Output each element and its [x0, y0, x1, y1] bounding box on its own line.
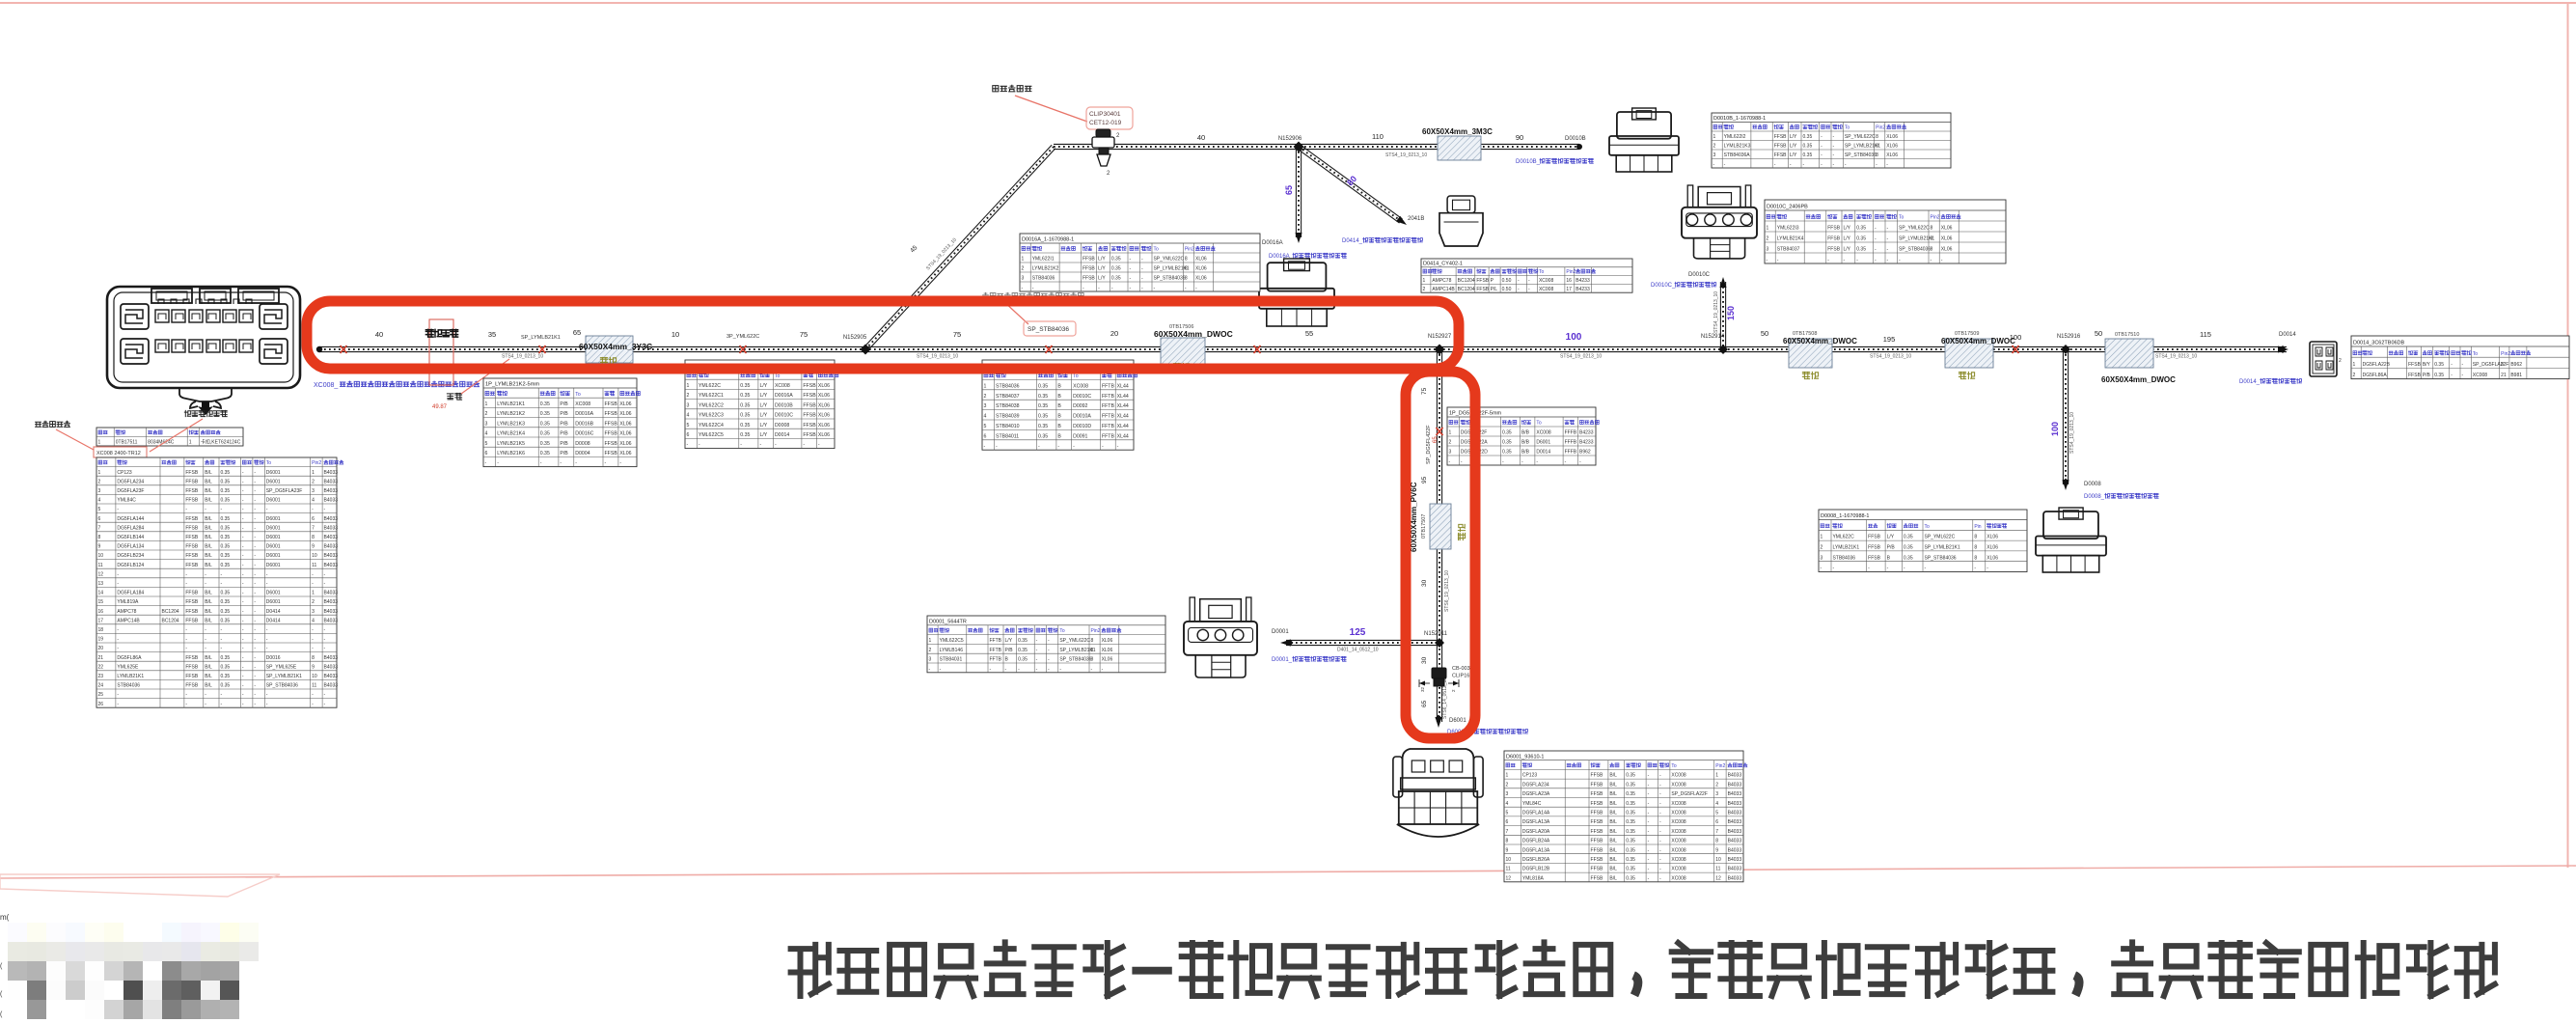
svg-text:FFSB: FFSB [1591, 801, 1603, 807]
svg-text:0.35: 0.35 [1856, 236, 1866, 242]
svg-text:STS4_19_0213_10: STS4_19_0213_10 [2155, 354, 2197, 360]
svg-text:3: 3 [312, 488, 315, 494]
svg-text:XC008: XC008 [2473, 373, 2488, 378]
svg-text:B4033: B4033 [1728, 829, 1742, 835]
svg-text:SP_YML625E: SP_YML625E [266, 664, 297, 670]
svg-text:0.35: 0.35 [220, 553, 230, 559]
svg-text:XL06: XL06 [1941, 226, 1953, 232]
svg-text:2: 2 [98, 479, 101, 484]
svg-text:1: 1 [189, 440, 192, 446]
svg-text:B/L: B/L [205, 488, 212, 494]
svg-text:FFTB: FFTB [989, 657, 1001, 663]
svg-text:4: 4 [1715, 801, 1718, 807]
svg-text:XC008: XC008 [575, 401, 590, 407]
svg-text:DG5FLA14A: DG5FLA14A [1522, 811, 1550, 816]
svg-text:0.35: 0.35 [1111, 266, 1121, 272]
svg-text:0.35: 0.35 [740, 413, 750, 419]
svg-text:FFSB: FFSB [1591, 867, 1603, 872]
svg-text:1: 1 [1713, 134, 1716, 140]
svg-text:0.35: 0.35 [1038, 394, 1048, 400]
svg-text:FFFB: FFFB [1565, 440, 1577, 446]
svg-text:0.35: 0.35 [1626, 867, 1635, 872]
svg-text:L/Y: L/Y [1844, 236, 1851, 242]
svg-text:FFSB: FFSB [2408, 362, 2421, 368]
svg-text:SP_STB84036: SP_STB84036 [1059, 657, 1091, 663]
svg-text:YML622I1: YML622I1 [1032, 257, 1055, 263]
svg-text:115: 115 [2200, 330, 2211, 339]
svg-text:To: To [1539, 269, 1545, 275]
svg-text:D0010B: D0010B [1565, 136, 1586, 142]
svg-text:DG5FLB144: DG5FLB144 [117, 535, 144, 540]
svg-text:FFSB: FFSB [185, 488, 198, 494]
svg-text:STB84036: STB84036 [117, 683, 140, 689]
svg-text:YML625E: YML625E [117, 664, 139, 670]
svg-text:9: 9 [312, 664, 315, 670]
svg-text:-: - [699, 442, 700, 448]
svg-text:FFTB: FFTB [989, 638, 1001, 644]
svg-text:CLIP30401: CLIP30401 [1089, 111, 1121, 118]
svg-text:SP_DG5FLA22F: SP_DG5FLA22F [1671, 791, 1708, 797]
svg-text:B/L: B/L [1609, 773, 1617, 779]
svg-text:11: 11 [312, 563, 316, 568]
svg-text:FFSB: FFSB [185, 618, 198, 623]
svg-text:21: 21 [2501, 373, 2507, 378]
svg-text:B4033: B4033 [1728, 811, 1742, 816]
svg-text:D0016A: D0016A [575, 411, 593, 417]
svg-text:D0014: D0014 [775, 432, 789, 438]
svg-text:3: 3 [312, 609, 315, 615]
svg-text:B/L: B/L [205, 498, 212, 504]
svg-text:FFTB: FFTB [1102, 433, 1115, 439]
svg-text:100: 100 [2010, 333, 2022, 342]
svg-text:DG5FLA284: DG5FLA284 [117, 525, 144, 531]
svg-text:STS4_19_0213_10: STS4_19_0213_10 [917, 354, 958, 360]
svg-text:FFSB: FFSB [1591, 791, 1603, 797]
svg-text:-: - [803, 442, 805, 448]
svg-text:-: - [619, 460, 621, 466]
svg-text:1: 1 [98, 440, 101, 446]
svg-text:FFSB: FFSB [185, 683, 198, 689]
svg-text:1: 1 [485, 401, 488, 407]
svg-text:8: 8 [1185, 257, 1188, 263]
svg-text:FFTB: FFTB [1102, 414, 1115, 420]
svg-text:65: 65 [1284, 185, 1294, 195]
svg-text:FFSB: FFSB [1591, 839, 1603, 844]
svg-text:D0010C: D0010C [775, 413, 793, 419]
svg-text:0.35: 0.35 [1018, 648, 1028, 653]
svg-text:To: To [266, 460, 272, 466]
svg-text:L/Y: L/Y [1005, 638, 1013, 644]
svg-text:3: 3 [1767, 247, 1769, 253]
svg-text:35: 35 [488, 330, 496, 339]
svg-text:Pin2: Pin2 [1566, 269, 1576, 275]
svg-text:8: 8 [1876, 134, 1878, 140]
svg-text:STB84038: STB84038 [996, 403, 1020, 409]
svg-text:FFSB: FFSB [1591, 819, 1603, 825]
svg-text:10: 10 [671, 330, 679, 339]
svg-text:XC008: XC008 [1671, 847, 1686, 853]
svg-text:SP_YML622C: SP_YML622C [1899, 226, 1930, 232]
svg-text:8: 8 [312, 655, 315, 661]
svg-text:STB84036: STB84036 [996, 383, 1020, 389]
svg-text:FFTB: FFTB [1102, 424, 1115, 429]
svg-text:D0016C: D0016C [575, 431, 593, 437]
svg-text:FFSB: FFSB [605, 401, 618, 407]
svg-text:L/Y: L/Y [1790, 144, 1797, 150]
svg-text:FFSB: FFSB [1827, 247, 1840, 253]
svg-text:B4033: B4033 [1728, 867, 1742, 872]
svg-text:D0016A: D0016A [775, 393, 793, 399]
svg-text:0.35: 0.35 [1018, 657, 1028, 663]
svg-text:STB84039: STB84039 [996, 414, 1020, 420]
svg-text:CET12-019: CET12-019 [1089, 120, 1122, 126]
svg-text:B/L: B/L [205, 599, 212, 605]
svg-text:FFSB: FFSB [1774, 144, 1787, 150]
svg-text:26: 26 [98, 702, 104, 707]
svg-text:2: 2 [1821, 545, 1823, 551]
svg-text:STS4_19_0213_10: STS4_19_0213_10 [502, 354, 543, 360]
svg-text:0.35: 0.35 [220, 498, 230, 504]
svg-text:4: 4 [98, 498, 101, 504]
svg-text:D6001: D6001 [266, 535, 281, 540]
svg-text:D6001: D6001 [266, 479, 281, 484]
svg-text:3: 3 [1713, 152, 1716, 158]
svg-text:12: 12 [1715, 875, 1721, 881]
svg-text:STS4_19_0213_10: STS4_19_0213_10 [1560, 354, 1602, 360]
svg-text:0.35: 0.35 [1626, 847, 1635, 853]
svg-text:B/L: B/L [205, 591, 212, 596]
svg-text:XC008: XC008 [1671, 801, 1686, 807]
svg-text:-: - [575, 460, 577, 466]
svg-text:XL06: XL06 [1987, 555, 1998, 561]
svg-text:0.35: 0.35 [740, 432, 750, 438]
svg-text:2: 2 [485, 411, 488, 417]
svg-text:CP123: CP123 [117, 470, 132, 476]
svg-text:0.35: 0.35 [220, 674, 230, 679]
svg-text:FFSB: FFSB [803, 402, 816, 408]
svg-text:To: To [1671, 763, 1677, 769]
svg-text:To: To [1059, 628, 1065, 634]
svg-text:XL06: XL06 [1886, 134, 1898, 140]
svg-text:XL44: XL44 [1117, 394, 1129, 400]
svg-text:DG5FLA234: DG5FLA234 [1522, 782, 1549, 788]
svg-text:0.35: 0.35 [1626, 811, 1635, 816]
svg-text:L/Y: L/Y [1098, 276, 1106, 282]
svg-text:YML622C: YML622C [1832, 535, 1854, 540]
svg-text:DG5FLA234: DG5FLA234 [117, 479, 144, 484]
svg-text:XL44: XL44 [1117, 383, 1129, 389]
svg-text:To: To [1073, 373, 1079, 379]
svg-text:17: 17 [98, 618, 104, 623]
svg-text:0.35: 0.35 [1038, 414, 1048, 420]
svg-text:Pin2: Pin2 [1090, 628, 1100, 634]
svg-text:P/B: P/B [2423, 373, 2431, 378]
svg-text:B/L: B/L [1609, 782, 1617, 788]
svg-text:8: 8 [1090, 648, 1093, 653]
svg-text:LYMLB21K4: LYMLB21K4 [497, 431, 525, 437]
svg-text:7: 7 [98, 525, 101, 531]
svg-text:XL06: XL06 [1195, 276, 1207, 282]
svg-text:SP_LYMLB21K1: SP_LYMLB21K1 [1925, 545, 1960, 551]
svg-text:XL06: XL06 [818, 402, 830, 408]
svg-text:12: 12 [98, 571, 104, 577]
svg-text:XL06: XL06 [1886, 152, 1898, 158]
svg-text:6: 6 [98, 516, 101, 522]
svg-text:FFSB: FFSB [803, 393, 816, 399]
svg-text:FFSB: FFSB [185, 674, 198, 679]
svg-text:0.35: 0.35 [1111, 276, 1121, 282]
svg-text:FFSB: FFSB [2408, 373, 2421, 378]
svg-text:8: 8 [1931, 247, 1933, 253]
svg-text:B/L: B/L [205, 655, 212, 661]
svg-text:FFFB: FFFB [1565, 450, 1577, 456]
svg-text:13: 13 [98, 581, 104, 587]
svg-text:1: 1 [687, 383, 690, 389]
svg-text:L/Y: L/Y [759, 383, 767, 389]
svg-text:B4033: B4033 [324, 563, 339, 568]
svg-text:95: 95 [1421, 476, 1428, 484]
svg-text:D0010B: D0010B [775, 402, 793, 408]
svg-text:DG5FL86A: DG5FL86A [2363, 373, 2388, 378]
svg-text:55: 55 [1305, 329, 1313, 338]
svg-text:4: 4 [485, 431, 488, 437]
svg-text:D0414: D0414 [266, 618, 281, 623]
svg-text:B4033: B4033 [324, 516, 339, 522]
svg-text:0.35: 0.35 [1502, 430, 1512, 436]
svg-text:DG5FLA184: DG5FLA184 [117, 591, 144, 596]
svg-text:B4033: B4033 [324, 544, 339, 550]
svg-text:BC1204: BC1204 [161, 618, 178, 623]
svg-text:XC008: XC008 [1539, 287, 1554, 292]
svg-text:FFSB: FFSB [1591, 857, 1603, 863]
svg-text:L/Y: L/Y [759, 423, 767, 429]
svg-text:LYMLB21K2: LYMLB21K2 [1032, 266, 1059, 272]
svg-text:B: B [1057, 394, 1061, 400]
svg-text:4: 4 [984, 414, 987, 420]
svg-text:D6001: D6001 [1536, 440, 1550, 446]
svg-text:0.35: 0.35 [220, 599, 230, 605]
svg-text:0.35: 0.35 [1626, 801, 1635, 807]
svg-text:D0010B_: D0010B_ [1516, 159, 1541, 165]
svg-text:D6001: D6001 [266, 498, 281, 504]
svg-text:FFSB: FFSB [185, 664, 198, 670]
svg-text:To: To [2473, 351, 2479, 357]
svg-text:DG5FLB234: DG5FLB234 [117, 553, 144, 559]
svg-text:0.35: 0.35 [1803, 144, 1813, 150]
svg-text:8: 8 [98, 535, 101, 540]
svg-text:LYMLB21K6: LYMLB21K6 [497, 451, 525, 456]
svg-text:11: 11 [1506, 867, 1511, 872]
svg-text:D401_14_0512_10: D401_14_0512_10 [1337, 648, 1379, 653]
svg-text:3: 3 [1022, 276, 1025, 282]
svg-text:0.35: 0.35 [220, 591, 230, 596]
svg-text:1: 1 [1715, 773, 1718, 779]
svg-text:D0016A_1-1670988-1: D0016A_1-1670988-1 [1022, 237, 1074, 243]
svg-text:D0014_3C62TB06DB: D0014_3C62TB06DB [2353, 341, 2405, 346]
svg-text:-: - [605, 460, 607, 466]
svg-text:DG5FLA13A: DG5FLA13A [1522, 847, 1550, 853]
svg-text:B/L: B/L [1609, 839, 1617, 844]
svg-text:10: 10 [1506, 857, 1512, 863]
svg-text:YML622C5: YML622C5 [699, 432, 724, 438]
svg-text:3: 3 [1449, 450, 1452, 456]
svg-text:8: 8 [312, 535, 315, 540]
svg-text:XL06: XL06 [818, 393, 830, 399]
svg-text:D6001: D6001 [266, 470, 281, 476]
svg-text:40: 40 [1197, 133, 1205, 142]
svg-text:1: 1 [1022, 257, 1025, 263]
svg-text:30: 30 [1421, 579, 1428, 587]
svg-text:XC008: XC008 [1671, 867, 1686, 872]
svg-text:CP123: CP123 [1522, 773, 1538, 779]
svg-text:19: 19 [98, 637, 104, 643]
svg-text:D0010A: D0010A [1073, 414, 1091, 420]
svg-text:6: 6 [984, 433, 987, 439]
svg-text:0.35: 0.35 [740, 383, 750, 389]
svg-text:FFSB: FFSB [1591, 829, 1603, 835]
svg-text:LYMLB21K1: LYMLB21K1 [497, 401, 525, 407]
svg-text:B/L: B/L [1609, 857, 1617, 863]
svg-text:FFSB: FFSB [803, 383, 816, 389]
svg-text:0TB17510: 0TB17510 [2115, 332, 2139, 338]
svg-text:8: 8 [2501, 362, 2504, 368]
svg-text:FFSB: FFSB [185, 609, 198, 615]
svg-text:SP_YML622C: SP_YML622C [1059, 638, 1090, 644]
svg-text:10: 10 [312, 553, 317, 559]
svg-text:D0414_CY402-1: D0414_CY402-1 [1423, 261, 1463, 266]
svg-text:D6001: D6001 [266, 525, 281, 531]
svg-text:SP_STB84036: SP_STB84036 [1028, 326, 1069, 333]
svg-text:To: To [1153, 247, 1159, 253]
svg-text:0.35: 0.35 [1904, 535, 1913, 540]
svg-text:11: 11 [1715, 867, 1720, 872]
svg-text:FFSB: FFSB [605, 451, 618, 456]
svg-text:XC008: XC008 [1671, 857, 1686, 863]
svg-text:0.35: 0.35 [540, 441, 550, 447]
svg-text:STB84036: STB84036 [1832, 555, 1855, 561]
svg-text:4: 4 [312, 498, 315, 504]
svg-text:L/Y: L/Y [1790, 134, 1797, 140]
svg-text:FFSB: FFSB [803, 423, 816, 429]
svg-text:To: To [575, 392, 581, 398]
svg-text:B4033: B4033 [324, 683, 339, 689]
svg-text:5: 5 [1715, 811, 1718, 816]
svg-text:XL06: XL06 [1102, 648, 1113, 653]
svg-text:YML622C5: YML622C5 [940, 638, 964, 644]
svg-text:DG5FL86A: DG5FL86A [117, 655, 142, 661]
svg-text:B4033: B4033 [324, 609, 339, 615]
svg-text:XL44: XL44 [1117, 403, 1129, 409]
svg-text:FFSB: FFSB [1774, 134, 1787, 140]
svg-text:YML622C: YML622C [699, 383, 721, 389]
svg-text:B/L: B/L [205, 544, 212, 550]
svg-text:-: - [687, 442, 689, 448]
svg-text:P/B: P/B [560, 411, 568, 417]
svg-text:8: 8 [1506, 839, 1509, 844]
svg-text:B4033: B4033 [1728, 839, 1742, 844]
svg-text:FFTB: FFTB [1102, 394, 1115, 400]
svg-text:L/Y: L/Y [759, 393, 767, 399]
svg-text:25: 25 [98, 692, 104, 698]
svg-text:49.87: 49.87 [432, 404, 448, 410]
svg-text:B/L: B/L [205, 525, 212, 531]
svg-text:0.35: 0.35 [1856, 226, 1866, 232]
svg-text:FFTB: FFTB [989, 648, 1001, 653]
svg-text:-: - [497, 460, 499, 466]
svg-text:STB84037: STB84037 [996, 394, 1020, 400]
svg-text:SP_STB84036: SP_STB84036 [266, 683, 298, 689]
svg-text:LYMLB21K3: LYMLB21K3 [1724, 144, 1751, 150]
svg-text:3: 3 [984, 403, 987, 409]
svg-text:B/L: B/L [1609, 847, 1617, 853]
svg-text:DG5FLA134: DG5FLA134 [117, 544, 144, 550]
svg-text:8: 8 [1715, 839, 1718, 844]
svg-text:0.35: 0.35 [220, 479, 230, 484]
svg-text:D6001: D6001 [266, 544, 281, 550]
svg-text:2: 2 [2353, 373, 2356, 378]
svg-text:75: 75 [1421, 387, 1428, 395]
svg-text:4: 4 [312, 618, 315, 623]
svg-text:0.35: 0.35 [220, 544, 230, 550]
svg-text:65: 65 [1433, 436, 1439, 443]
svg-text:FFSB: FFSB [1827, 226, 1840, 232]
svg-text:FFSB: FFSB [185, 655, 198, 661]
svg-text:XL06: XL06 [818, 432, 830, 438]
svg-text:9: 9 [98, 544, 101, 550]
svg-text:2: 2 [1713, 144, 1716, 150]
svg-text:B/Y: B/Y [2423, 362, 2431, 368]
svg-text:STB84031: STB84031 [940, 657, 963, 663]
svg-text:FFSB: FFSB [1476, 287, 1489, 292]
svg-text:B/L: B/L [205, 470, 212, 476]
svg-text:P/B: P/B [560, 451, 568, 456]
svg-text:D0092: D0092 [1073, 403, 1087, 409]
svg-text:8: 8 [1185, 276, 1188, 282]
svg-text:75: 75 [953, 330, 961, 339]
svg-text:FFSB: FFSB [1591, 847, 1603, 853]
svg-text:LYMLB21K1: LYMLB21K1 [117, 674, 144, 679]
svg-text:XL06: XL06 [619, 451, 631, 456]
svg-text:FFTB: FFTB [1102, 383, 1115, 389]
svg-text:B4033: B4033 [324, 618, 339, 623]
svg-text:0.35: 0.35 [1111, 257, 1121, 263]
svg-text:FFSB: FFSB [1868, 545, 1880, 551]
svg-text:DG5FLA20A: DG5FLA20A [1522, 829, 1550, 835]
svg-text:0.50: 0.50 [1502, 278, 1512, 284]
svg-text:B/L: B/L [205, 535, 212, 540]
svg-text:BC1204: BC1204 [1458, 278, 1475, 284]
svg-text:FFSB: FFSB [605, 431, 618, 437]
svg-text:B4033: B4033 [1728, 801, 1742, 807]
svg-text:AMPC14B: AMPC14B [1432, 287, 1455, 292]
svg-text:L/Y: L/Y [1844, 247, 1851, 253]
svg-text:STS4_19_0213_10: STS4_19_0213_10 [1385, 152, 1427, 158]
svg-text:FFSB: FFSB [605, 441, 618, 447]
svg-text:L/Y: L/Y [759, 402, 767, 408]
svg-text:90: 90 [1516, 133, 1523, 142]
svg-text:FFSB: FFSB [1591, 875, 1603, 881]
svg-text:B4033: B4033 [324, 535, 339, 540]
svg-text:8: 8 [1931, 236, 1933, 242]
svg-text:-: - [818, 442, 820, 448]
svg-text:XL06: XL06 [619, 401, 631, 407]
svg-text:B/L: B/L [205, 563, 212, 568]
svg-text:D0016A: D0016A [1262, 240, 1283, 246]
svg-text:DG5FLA23A: DG5FLA23A [1522, 791, 1550, 797]
svg-text:0TB17507: 0TB17507 [1421, 514, 1427, 539]
svg-text:B/B: B/B [1521, 430, 1530, 436]
svg-text:50: 50 [2095, 329, 2102, 338]
